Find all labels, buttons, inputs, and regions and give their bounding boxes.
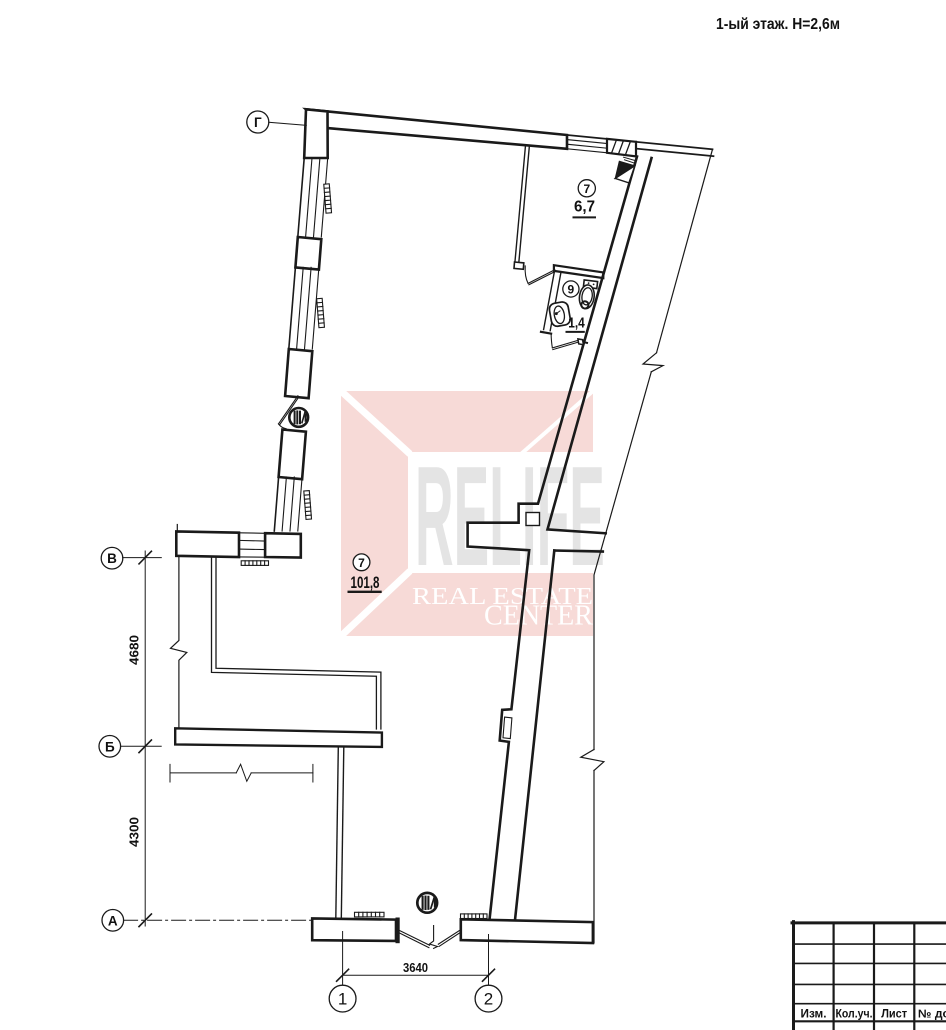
svg-text:Б: Б: [105, 739, 115, 754]
svg-text:4300: 4300: [127, 817, 142, 847]
svg-text:Изм.: Изм.: [801, 1009, 827, 1021]
svg-text:1: 1: [338, 990, 347, 1009]
svg-text:Кол.уч.: Кол.уч.: [836, 1009, 873, 1021]
svg-text:101,8: 101,8: [351, 574, 380, 592]
svg-text:3640: 3640: [403, 960, 428, 975]
svg-text:7: 7: [358, 556, 365, 570]
svg-text:7: 7: [583, 182, 590, 196]
svg-text:1,4: 1,4: [568, 315, 585, 332]
svg-text:В: В: [107, 551, 117, 566]
svg-text:1-ый этаж. Н=2,6м: 1-ый этаж. Н=2,6м: [716, 16, 840, 33]
svg-text:CENTER: CENTER: [484, 601, 593, 632]
svg-text:Лист: Лист: [881, 1009, 907, 1021]
svg-text:RELIFE: RELIFE: [415, 437, 605, 596]
svg-text:6,7: 6,7: [574, 199, 595, 216]
svg-text:4680: 4680: [127, 635, 142, 665]
svg-text:Г: Г: [254, 115, 262, 130]
svg-text:№ док: № док: [918, 1009, 946, 1021]
svg-text:А: А: [108, 913, 118, 928]
svg-text:9: 9: [568, 283, 575, 297]
svg-text:2: 2: [484, 990, 493, 1009]
